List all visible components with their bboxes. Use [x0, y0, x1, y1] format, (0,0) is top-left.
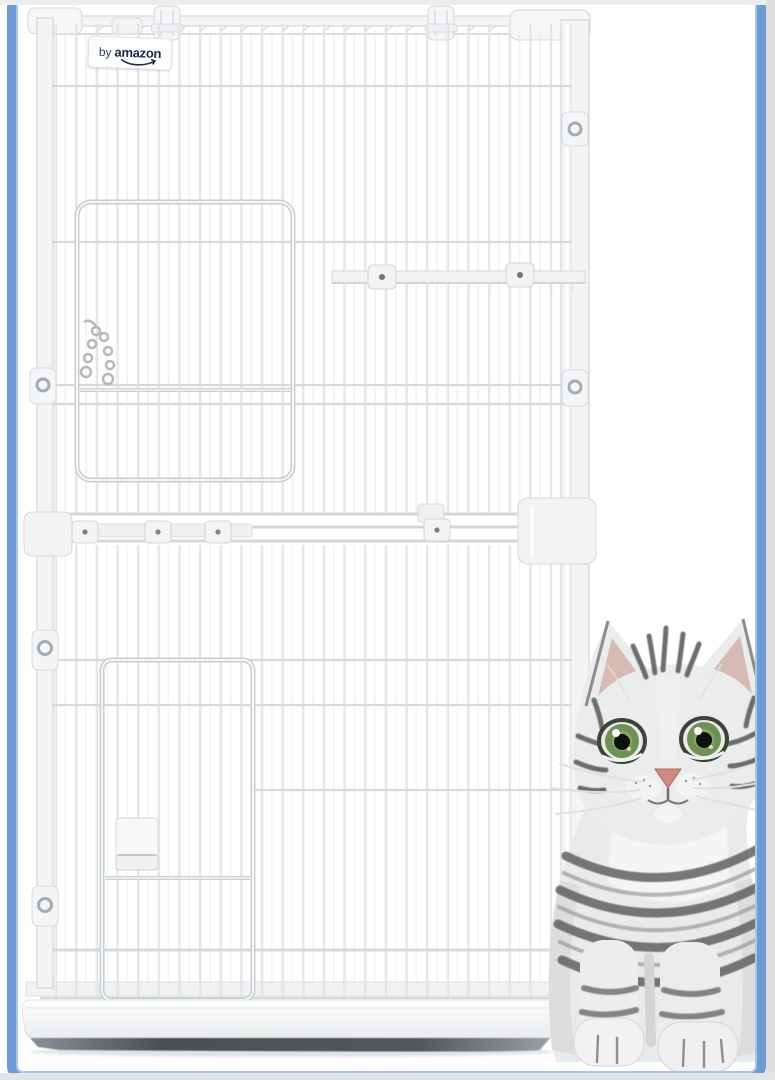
- left-post: [37, 18, 53, 988]
- lower-front-wires: [54, 545, 572, 1004]
- cat-cage-illustration: [0, 0, 775, 1080]
- bottom-edge-strip: [0, 1073, 775, 1080]
- cage: [24, 6, 596, 1005]
- product-image-canvas: by amazon: [0, 0, 775, 1080]
- top-edge-strip: [0, 0, 775, 5]
- amazon-smile-icon: [120, 58, 160, 68]
- tray-face: [22, 1000, 559, 1038]
- upper-front-wires: [54, 24, 572, 513]
- badge-prefix: by: [99, 45, 112, 59]
- right-edge-strip: [766, 0, 775, 1080]
- tray-dark-base: [30, 1038, 550, 1052]
- door-latch: [116, 818, 158, 870]
- by-amazon-badge: by amazon: [87, 36, 172, 71]
- base-tray: [22, 1000, 559, 1057]
